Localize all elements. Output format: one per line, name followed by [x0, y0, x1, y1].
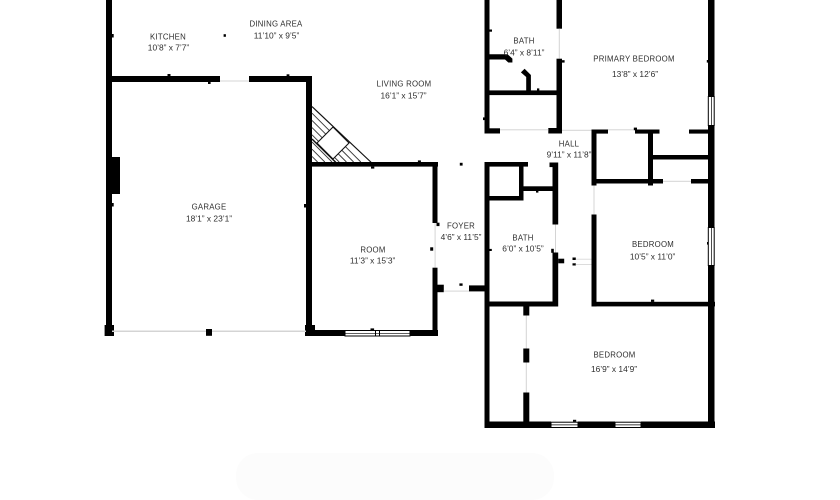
svg-text:HALL: HALL — [559, 140, 580, 149]
svg-text:BATH: BATH — [513, 37, 534, 46]
svg-text:KITCHEN: KITCHEN — [150, 33, 186, 42]
svg-text:10’5” x 11’0”: 10’5” x 11’0” — [630, 252, 676, 262]
svg-text:6’4” x 8’11”: 6’4” x 8’11” — [504, 48, 545, 58]
svg-text:BATH: BATH — [512, 234, 533, 243]
svg-text:16’9” x 14’9”: 16’9” x 14’9” — [591, 364, 637, 374]
svg-text:FOYER: FOYER — [447, 222, 475, 231]
svg-text:DINING AREA: DINING AREA — [249, 20, 303, 29]
svg-text:13’8” x 12’6”: 13’8” x 12’6” — [612, 69, 658, 79]
svg-text:BEDROOM: BEDROOM — [593, 351, 635, 360]
svg-text:16’1” x 15’7”: 16’1” x 15’7” — [380, 90, 426, 100]
svg-text:18’1” x 23’1”: 18’1” x 23’1” — [186, 214, 232, 224]
svg-text:ROOM: ROOM — [360, 246, 385, 255]
svg-text:9’11” x 11’8”: 9’11” x 11’8” — [547, 150, 592, 160]
svg-text:LIVING ROOM: LIVING ROOM — [377, 80, 432, 89]
svg-text:6’0” x 10’5”: 6’0” x 10’5” — [502, 244, 544, 254]
svg-text:GARAGE: GARAGE — [192, 203, 227, 212]
svg-text:11’3” x 15’3”: 11’3” x 15’3” — [350, 256, 396, 266]
svg-text:BEDROOM: BEDROOM — [632, 240, 674, 249]
svg-text:PRIMARY BEDROOM: PRIMARY BEDROOM — [593, 55, 674, 64]
svg-text:4’6” x 11’5”: 4’6” x 11’5” — [441, 232, 482, 242]
svg-text:10’8” x 7’7”: 10’8” x 7’7” — [148, 43, 190, 53]
svg-text:11’10” x 9’5”: 11’10” x 9’5” — [254, 31, 300, 41]
